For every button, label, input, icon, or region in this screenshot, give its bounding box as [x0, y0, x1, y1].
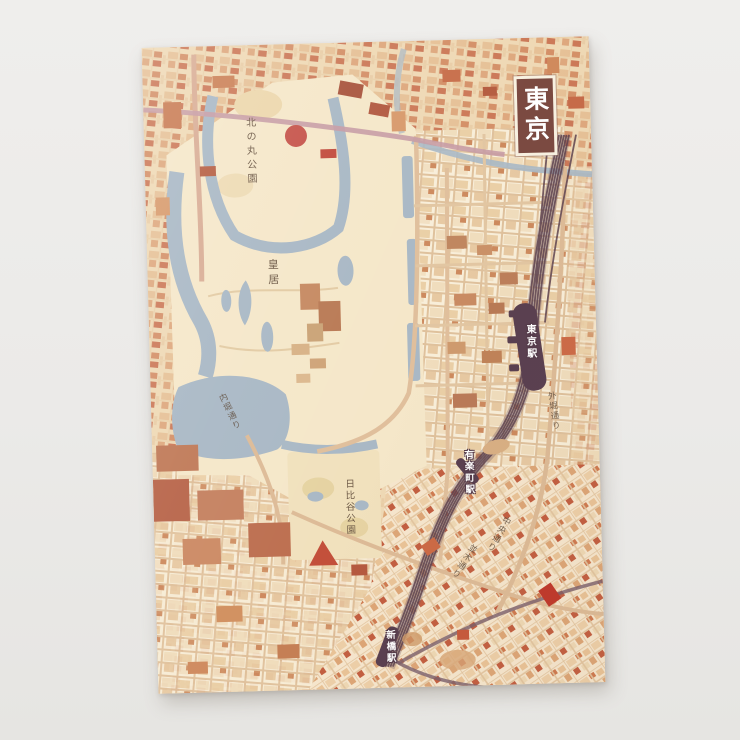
title-plate: 東京	[513, 75, 557, 156]
photo-background: 東京 北の丸公園 皇居 東京駅 有楽町駅 日比谷公園 新橋駅 内堀通り 外堀通り…	[0, 0, 740, 740]
map-poster: 東京 北の丸公園 皇居 東京駅 有楽町駅 日比谷公園 新橋駅 内堀通り 外堀通り…	[142, 36, 606, 693]
title-text: 東京	[522, 85, 549, 146]
